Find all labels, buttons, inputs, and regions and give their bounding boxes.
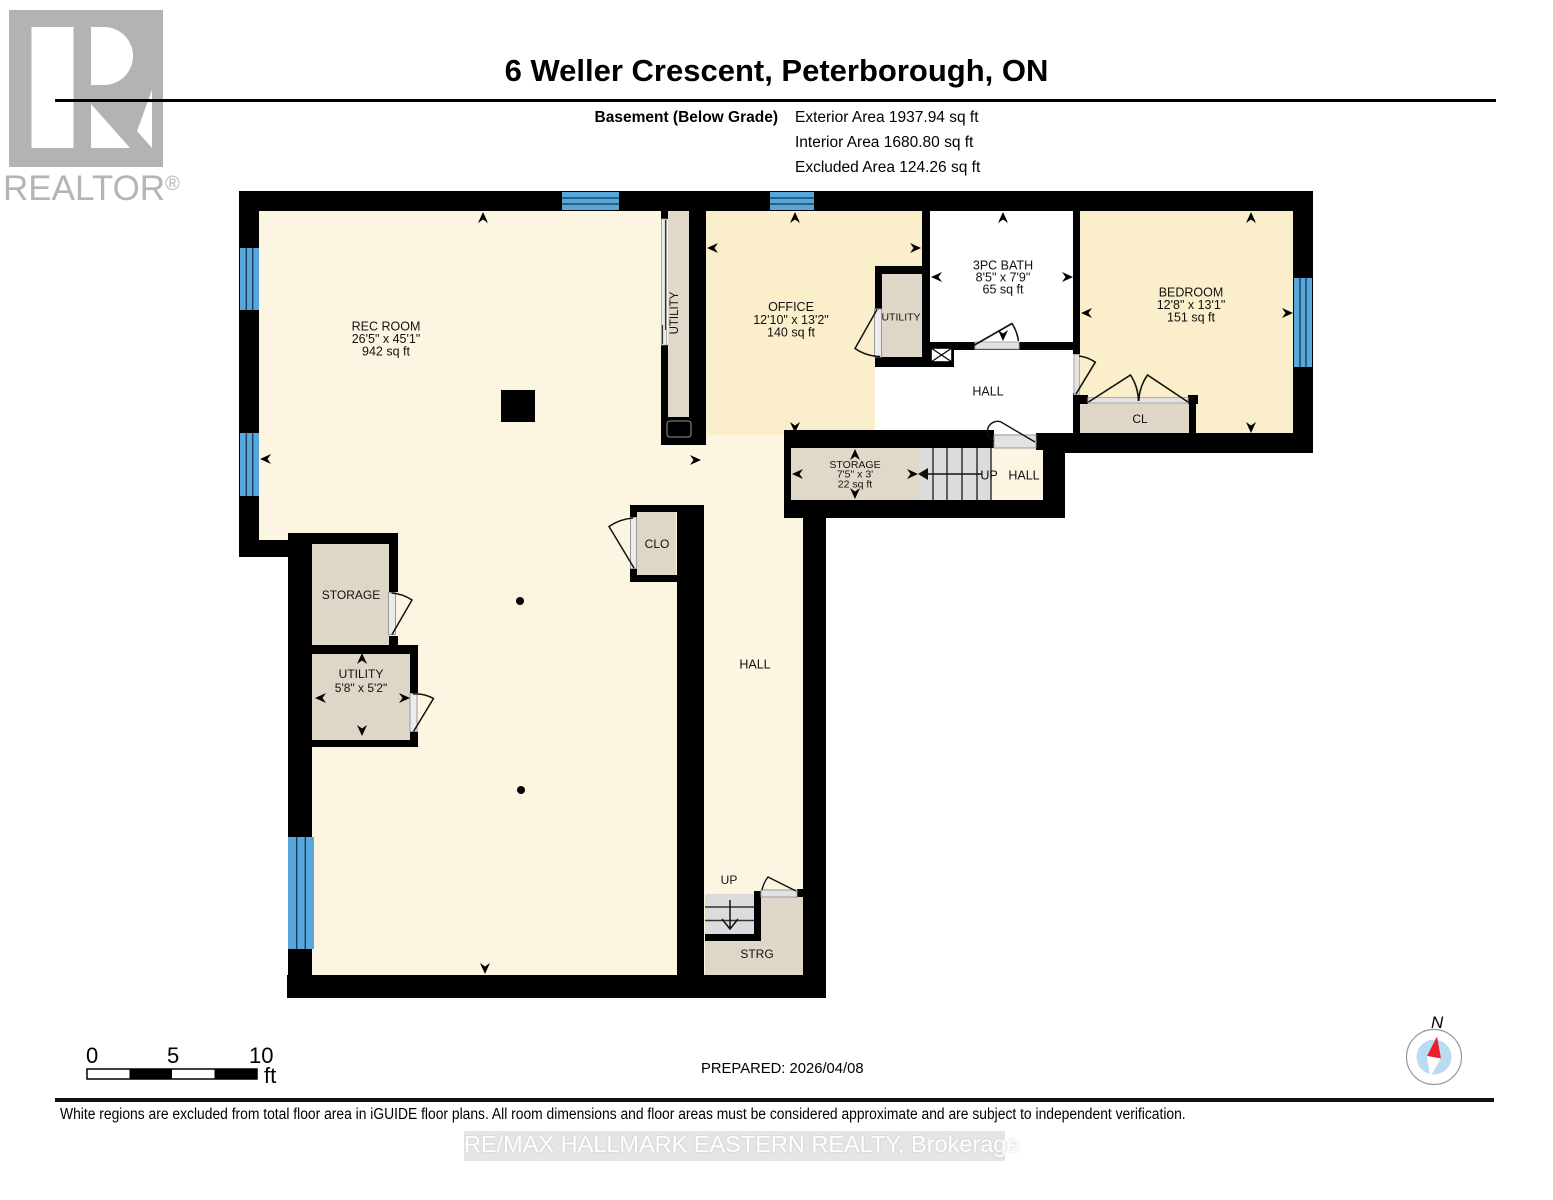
svg-text:HALL: HALL xyxy=(739,658,770,672)
svg-text:UP: UP xyxy=(980,469,997,483)
svg-text:0: 0 xyxy=(86,1043,98,1068)
svg-text:151 sq ft: 151 sq ft xyxy=(1167,311,1215,325)
svg-text:STRG: STRG xyxy=(740,947,773,961)
svg-text:CLO: CLO xyxy=(645,537,670,551)
svg-text:UTILITY: UTILITY xyxy=(881,312,920,324)
svg-text:HALL: HALL xyxy=(1008,469,1039,483)
svg-text:CL: CL xyxy=(1132,412,1148,426)
svg-text:UTILITY: UTILITY xyxy=(669,291,681,334)
svg-text:OFFICE: OFFICE xyxy=(768,300,814,314)
svg-text:22 sq ft: 22 sq ft xyxy=(838,479,873,491)
svg-text:HALL: HALL xyxy=(972,385,1003,399)
svg-text:UTILITY: UTILITY xyxy=(339,667,384,681)
svg-text:942 sq ft: 942 sq ft xyxy=(362,345,410,359)
svg-text:5'8" x 5'2": 5'8" x 5'2" xyxy=(335,681,387,695)
svg-text:STORAGE: STORAGE xyxy=(322,588,380,602)
svg-text:65 sq ft: 65 sq ft xyxy=(983,283,1025,297)
svg-text:140 sq ft: 140 sq ft xyxy=(767,326,815,340)
svg-text:5: 5 xyxy=(167,1043,179,1068)
svg-text:UP: UP xyxy=(721,873,738,887)
svg-text:ft: ft xyxy=(264,1063,276,1088)
